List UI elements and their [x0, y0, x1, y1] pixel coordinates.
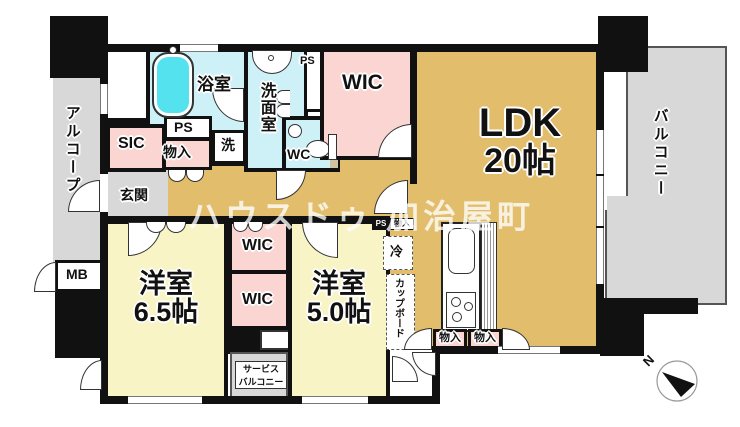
balcony-label: バルコニー — [652, 108, 668, 238]
laundry-label: 洗 — [221, 138, 235, 153]
kitchen-stove — [446, 292, 476, 328]
ldk-label: LDK 20帖 — [440, 94, 600, 188]
wall-chunk-br-wide — [600, 298, 698, 314]
washbasin-drain-icon — [268, 55, 274, 61]
wc-bifold-1 — [276, 90, 290, 104]
pillar-top-left — [50, 16, 108, 78]
wic-mid2-label: WIC — [242, 292, 273, 309]
ps-mid-label: PS — [174, 120, 193, 135]
service-balcony-window — [260, 330, 290, 350]
floor-plan: PS 物入 アルコープ 浴室 洗面室 PS PS 物入 洗 WC SIC 玄関 … — [0, 0, 740, 427]
washroom-label: 洗面室 — [257, 82, 274, 166]
outside-door-arc — [80, 360, 102, 390]
bathtub-faucet-icon — [169, 46, 177, 54]
wc-label: WC — [287, 147, 310, 162]
stove-burner-2 — [464, 302, 473, 311]
entrance-opening — [100, 174, 108, 212]
mb-label: MB — [66, 267, 88, 282]
ldk-size: 20帖 — [484, 144, 556, 180]
wc-basin-icon — [288, 124, 302, 138]
ps-top-label: PS — [300, 56, 315, 68]
bathtub — [152, 52, 194, 118]
kitchen-counter-edge — [481, 222, 497, 332]
bedroom50-label: 洋室 5.0帖 — [288, 262, 390, 334]
window-top-bath — [180, 44, 218, 52]
service-balcony-line1: サービス — [243, 362, 279, 375]
pillar-top-right — [598, 16, 648, 72]
cupboard-label: カップボード — [392, 278, 403, 348]
window-bedroom65-bottom — [128, 396, 202, 404]
alcove-label: アルコープ — [64, 105, 80, 245]
mb-door-arc — [34, 262, 56, 292]
wc-bifold-2 — [276, 104, 290, 118]
stove-burner-3 — [452, 312, 462, 322]
compass-icon — [654, 358, 700, 404]
kitchen-storage1-label: 物入 — [439, 333, 461, 345]
bedroom65-label: 洋室 6.5帖 — [104, 262, 228, 334]
service-balcony-line2: バルコニー — [239, 375, 284, 388]
wic-top-label: WIC — [342, 72, 383, 94]
bedroom65-size: 6.5帖 — [134, 298, 199, 326]
bedroom50-name: 洋室 — [312, 270, 366, 298]
pillar-bottom-left — [55, 292, 103, 358]
balcony-step-patch — [607, 196, 628, 212]
stove-burner-1 — [451, 297, 461, 307]
ldk-name: LDK — [479, 102, 561, 144]
wall-hall-ldk-stub — [410, 160, 417, 184]
window-bedroom50-bottom — [302, 396, 368, 404]
bedroom65-name: 洋室 — [139, 270, 193, 298]
toilet-tank-icon — [328, 134, 337, 160]
service-balcony-label: サービス バルコニー — [235, 361, 287, 389]
compass — [654, 358, 700, 404]
window-left — [100, 84, 108, 114]
watermark: ハウスドゥ 加治屋町 — [188, 190, 608, 238]
fridge-label: 冷 — [390, 245, 403, 259]
bath-label: 浴室 — [197, 76, 231, 94]
kitchen-storage2-label: 物入 — [474, 333, 496, 345]
genkan-label: 玄関 — [120, 188, 148, 203]
wall-bath-left-stub — [100, 118, 150, 124]
bedroom50-size: 5.0帖 — [307, 298, 372, 326]
wic-mid1-label: WIC — [242, 238, 273, 255]
sic-label: SIC — [118, 136, 145, 153]
entrance-storage-label: 物入 — [163, 145, 191, 160]
